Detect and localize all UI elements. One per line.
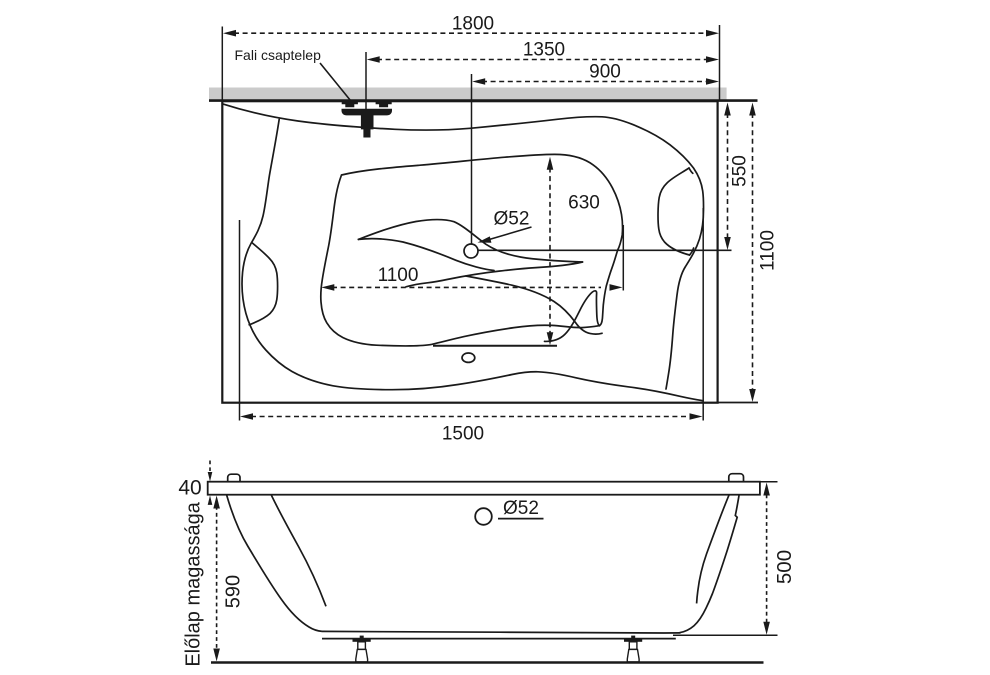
svg-text:550: 550 <box>730 155 751 187</box>
svg-text:40: 40 <box>178 477 201 500</box>
svg-text:500: 500 <box>773 550 796 584</box>
svg-text:590: 590 <box>223 575 245 608</box>
svg-text:Előlap magassága: Előlap magassága <box>182 501 204 666</box>
svg-text:Ø52: Ø52 <box>503 498 539 519</box>
svg-text:1800: 1800 <box>452 14 494 35</box>
svg-text:1500: 1500 <box>442 424 484 445</box>
svg-text:1350: 1350 <box>523 40 565 61</box>
svg-text:630: 630 <box>568 193 600 214</box>
svg-text:900: 900 <box>589 62 621 83</box>
svg-text:1100: 1100 <box>758 230 779 271</box>
svg-text:Ø52: Ø52 <box>494 209 530 230</box>
svg-text:Fali csaptelep: Fali csaptelep <box>235 47 322 63</box>
svg-text:1100: 1100 <box>378 265 419 286</box>
